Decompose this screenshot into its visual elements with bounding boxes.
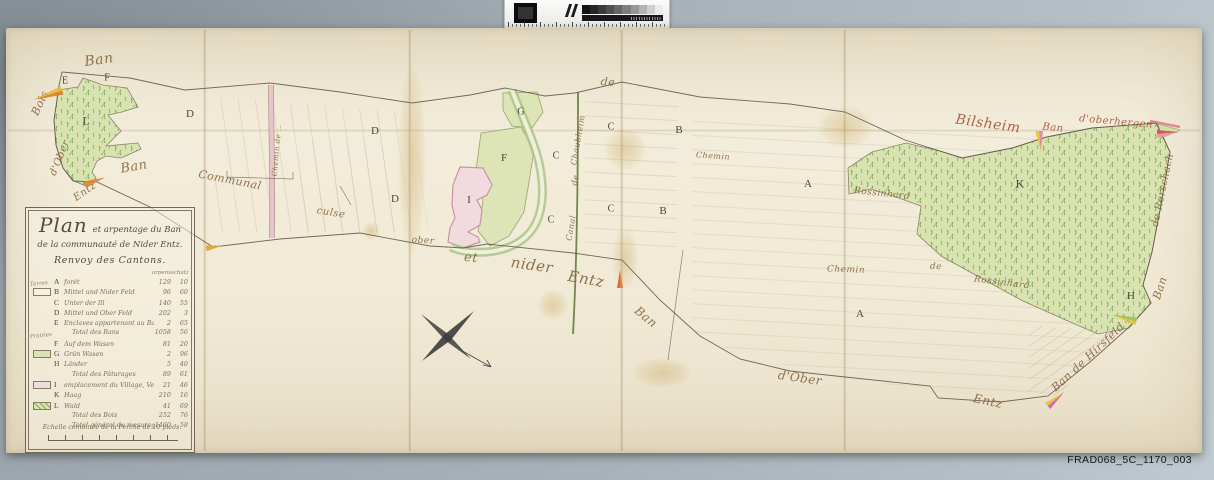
legend-row-value-arpens: 202 <box>154 309 171 317</box>
calibration-slash-mark <box>571 4 578 17</box>
map-sheet: EFLDDDGFICCCCBBAAKH BanBoisBand'OberEntz… <box>6 28 1202 453</box>
legend-total-row: Total des Pâturages8961 <box>32 370 188 380</box>
legend-row-value-arpens: 1058 <box>154 328 171 336</box>
legend-row: CUnter der Ill14055 <box>32 298 188 308</box>
legend-group-label: Prairies <box>30 332 52 340</box>
grayscale-step <box>631 5 639 14</box>
legend-row-value-arpens: 2 <box>154 350 171 358</box>
legend-total-row: Total des Bois25276 <box>32 411 188 421</box>
legend-col-arpens: arpens <box>152 270 169 276</box>
legend-row: Iemplacement du Village, Vergers &c.2146 <box>32 380 188 390</box>
legend-row: PrairiesFAuf dem Wasen8120 <box>32 339 188 349</box>
legend-rows: Aforêt12910TerresBMittel und Nider Feld9… <box>32 277 188 431</box>
legend-row-description: emplacement du Village, Vergers &c. <box>64 381 154 389</box>
legend-row-description: Länder <box>64 360 154 368</box>
calibration-black-bar <box>582 15 663 21</box>
legend-cartouche: Plan et arpentage du Ban de la communaut… <box>25 207 195 453</box>
legend-row-value-arpens: 21 <box>154 381 171 389</box>
legend-row: TerresBMittel und Nider Feld9660 <box>32 287 188 297</box>
legend-row-value-schatz: 69 <box>171 402 188 410</box>
legend-row-value-arpens: 252 <box>154 411 171 419</box>
legend-row-letter: C <box>54 298 64 307</box>
legend-row-value-schatz: 40 <box>171 360 188 368</box>
boundary-marker <box>1045 389 1067 409</box>
legend-heading: Renvoy des Cantons. <box>32 255 188 266</box>
legend-row-value-schatz: 96 <box>171 350 188 358</box>
legend-row-description: forêt <box>64 278 154 286</box>
legend-row-letter: A <box>54 277 64 286</box>
legend-row: LWald4169 <box>32 401 188 411</box>
legend-row-description: Total des Bois <box>72 411 154 419</box>
legend-row-letter: G <box>54 349 64 358</box>
legend-row-value-arpens: 96 <box>154 288 171 296</box>
legend-total-row: Total des Bans105856 <box>32 328 188 338</box>
grayscale-step <box>655 5 663 14</box>
legend-row-value-schatz: 76 <box>171 411 188 419</box>
scan-background: EFLDDDGFICCCCBBAAKH BanBoisBand'OberEntz… <box>0 0 1214 480</box>
grayscale-step <box>606 5 614 14</box>
legend-row-value-arpens: 2 <box>154 319 171 327</box>
legend-row-description: Unter der Ill <box>64 299 154 307</box>
legend-row: KHaag21016 <box>32 390 188 400</box>
legend-row: DMittel und Ober Feld2023 <box>32 308 188 318</box>
legend-row-description: Enclaves appartenant au Ban de … <box>64 319 154 327</box>
boundary-marker <box>1157 128 1180 138</box>
legend-column-headers: arpens schatz <box>32 270 188 276</box>
legend-row-letter: E <box>54 318 64 327</box>
legend-row-value-schatz: 46 <box>171 381 188 389</box>
legend-title: Plan et arpentage du Ban <box>32 215 188 235</box>
legend-row-description: Mittel und Nider Feld <box>64 288 154 296</box>
legend-row-letter: B <box>54 287 64 296</box>
legend-row-value-schatz: 56 <box>171 328 188 336</box>
legend-row-letter: F <box>54 339 64 348</box>
boundary-marker <box>617 270 623 288</box>
grayscale-step-wedge <box>582 5 663 14</box>
grayscale-step <box>582 5 590 14</box>
legend-row-description: Grün Wasen <box>64 350 154 358</box>
legend-row: GGrün Wasen296 <box>32 349 188 359</box>
legend-row-description: Total des Pâturages <box>72 370 154 378</box>
legend-row-letter: L <box>54 401 64 410</box>
legend-swatch-pink <box>33 381 51 389</box>
legend-row-value-schatz: 65 <box>171 319 188 327</box>
legend-row-value-arpens: 5 <box>154 360 171 368</box>
legend-row-description: Total des Bans <box>72 328 154 336</box>
legend-row-value-schatz: 10 <box>171 278 188 286</box>
scale-bar <box>48 435 178 441</box>
legend-row-letter: I <box>54 380 64 389</box>
calibration-ruler <box>508 22 666 27</box>
grayscale-calibration-strip <box>504 0 670 29</box>
boundary-marker <box>1035 131 1045 152</box>
legend-row-description: Mittel und Ober Feld <box>64 309 154 317</box>
legend-swatch-green <box>33 350 51 358</box>
legend-row-value-arpens: 129 <box>154 278 171 286</box>
legend-row-value-arpens: 41 <box>154 402 171 410</box>
grayscale-step <box>639 5 647 14</box>
legend-swatch-plain <box>33 288 51 296</box>
grayscale-step <box>590 5 598 14</box>
boundary-marker <box>1110 311 1137 325</box>
legend-col-schatz: schatz <box>171 270 188 276</box>
scale-caption: Echelle combinée de la Perche de 10 pied… <box>38 424 186 431</box>
legend-row-value-arpens: 140 <box>154 299 171 307</box>
legend-row: EEnclaves appartenant au Ban de …265 <box>32 318 188 328</box>
boundary-marker <box>206 243 223 252</box>
legend-row: HLänder540 <box>32 359 188 369</box>
archive-reference: FRAD068_5C_1170_003 <box>1067 454 1192 466</box>
legend-row-description: Auf dem Wasen <box>64 340 154 348</box>
legend-row-letter: D <box>54 308 64 317</box>
grayscale-step <box>622 5 630 14</box>
legend-row-value-schatz: 61 <box>171 370 188 378</box>
legend-row-letter: H <box>54 359 64 368</box>
legend-swatch-forest <box>33 402 51 410</box>
calibration-target-square <box>514 3 537 23</box>
legend-group-label: Terres <box>30 280 48 288</box>
legend-row-value-arpens: 89 <box>154 370 171 378</box>
legend-row-value-schatz: 20 <box>171 340 188 348</box>
legend-row-letter: K <box>54 390 64 399</box>
legend-subtitle: de la communauté de Nider Entz. <box>32 240 188 250</box>
boundary-marker <box>32 86 63 104</box>
boundary-marker <box>83 174 106 188</box>
legend-row-description: Haag <box>64 391 154 399</box>
legend-row-value-schatz: 3 <box>171 309 188 317</box>
grayscale-step <box>614 5 622 14</box>
legend-row-value-arpens: 81 <box>154 340 171 348</box>
legend-row-value-schatz: 16 <box>171 391 188 399</box>
legend-title-rest: et arpentage du Ban <box>93 225 181 235</box>
legend-row-description: Wald <box>64 402 154 410</box>
grayscale-step <box>598 5 606 14</box>
legend-row: Aforêt12910 <box>32 277 188 287</box>
legend-row-value-schatz: 55 <box>171 299 188 307</box>
legend-row-value-schatz: 60 <box>171 288 188 296</box>
legend-row-value-arpens: 210 <box>154 391 171 399</box>
grayscale-step <box>647 5 655 14</box>
legend-title-initial: Plan <box>39 213 88 237</box>
